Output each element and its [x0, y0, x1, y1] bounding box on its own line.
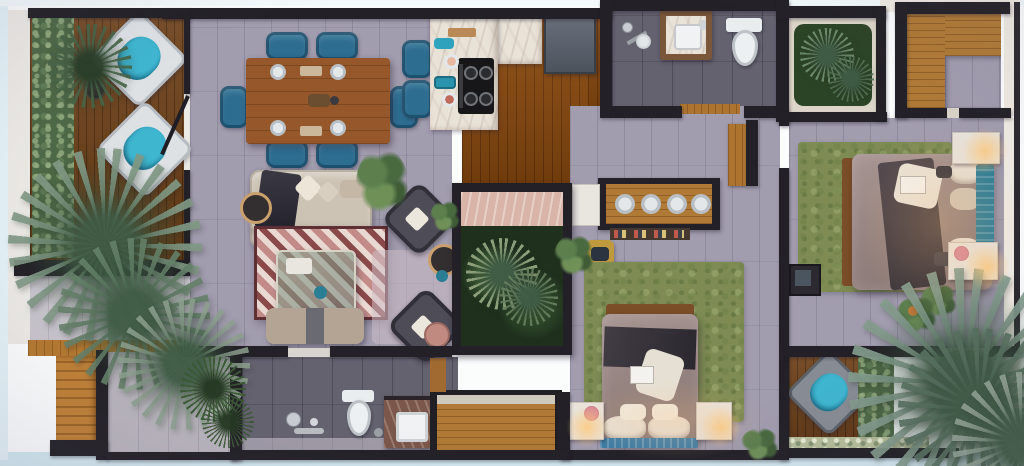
room-garden-patio-top	[776, 6, 888, 122]
room-terrace-right	[785, 346, 1015, 458]
room-courtyard-center	[452, 183, 572, 355]
floor-plan-render	[0, 0, 1024, 466]
room-bathroom-top	[600, 0, 790, 120]
room-bathroom-bottom	[230, 346, 570, 460]
room-bedroom-center	[570, 228, 780, 456]
room-bedroom-right	[789, 118, 1015, 348]
room-hallway	[570, 106, 780, 230]
sky-edge-left	[0, 0, 8, 460]
room-closet	[895, 2, 1020, 120]
room-entry	[8, 230, 234, 458]
